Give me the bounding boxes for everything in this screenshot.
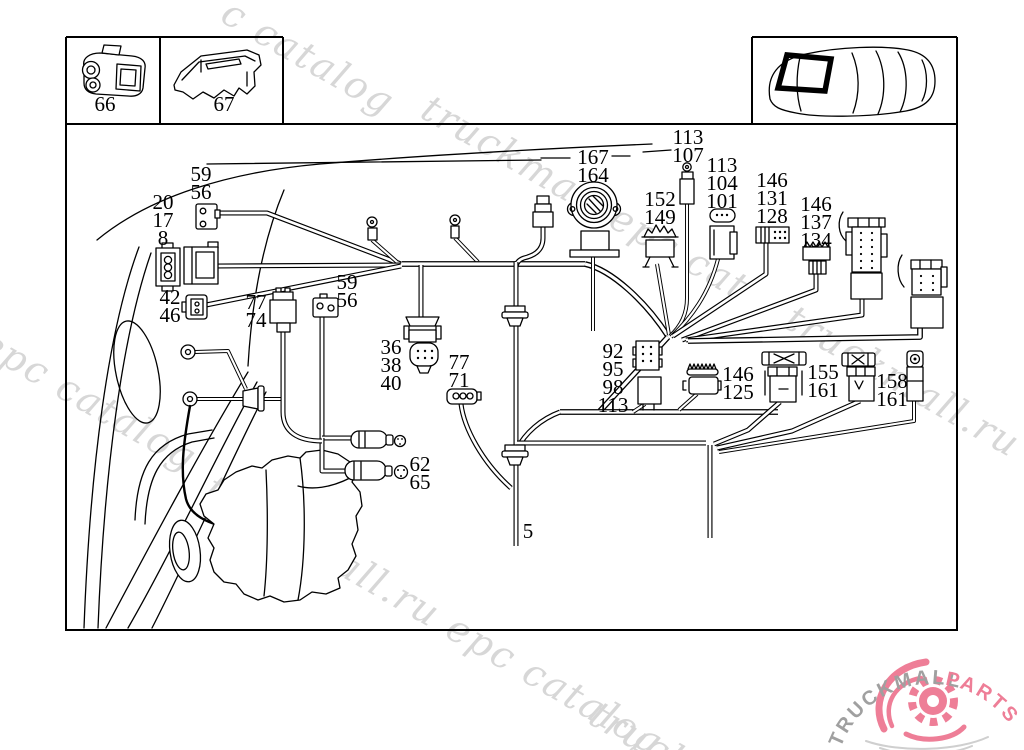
inset-connector-66 xyxy=(83,45,146,96)
fuse-connector-158-161 xyxy=(842,353,875,401)
connector-77-71 xyxy=(447,389,481,404)
multi-pin-connector-b xyxy=(898,255,947,328)
bracket-59-56 xyxy=(196,204,220,229)
highlighted-harness-area xyxy=(778,55,831,91)
connector-152-149 xyxy=(642,225,678,267)
fuse-connector-155-161 xyxy=(762,352,806,402)
antenna-tip-connectors xyxy=(367,215,460,240)
logo-parts-text: PARTS xyxy=(944,668,1024,728)
multi-pin-connector-a xyxy=(839,212,887,299)
grommet-167-164 xyxy=(568,182,621,257)
inset-car-location xyxy=(769,47,935,116)
brand-logo: TRUCKMALL PARTS xyxy=(825,662,1024,750)
connector-20-17-8 xyxy=(156,242,218,291)
connector-146-137-134 xyxy=(803,242,830,274)
connector-113-104-101 xyxy=(710,209,737,259)
connector-77-74 xyxy=(270,288,296,332)
plate-59-56 xyxy=(313,294,338,317)
inset-clip-67 xyxy=(174,50,261,99)
connector-146-131-128 xyxy=(756,227,789,243)
antenna-lead-113-107 xyxy=(680,163,694,204)
connector-146-125 xyxy=(683,364,721,394)
antenna-connector-right xyxy=(907,351,923,401)
connector-36-38-40 xyxy=(404,317,441,373)
frame-borders xyxy=(66,37,957,630)
bullet-connectors-62-65 xyxy=(345,431,408,480)
connector-92-95-98-113 xyxy=(633,341,662,410)
connector-on-5-wire xyxy=(533,196,553,227)
epc-wiring-diagram-page: c catalogtruckmall epc cattruckmall.ru e… xyxy=(0,0,1024,750)
connector-42-46 xyxy=(182,295,207,319)
wiring-harness-drawing: TRUCKMALL PARTS xyxy=(0,0,1024,750)
